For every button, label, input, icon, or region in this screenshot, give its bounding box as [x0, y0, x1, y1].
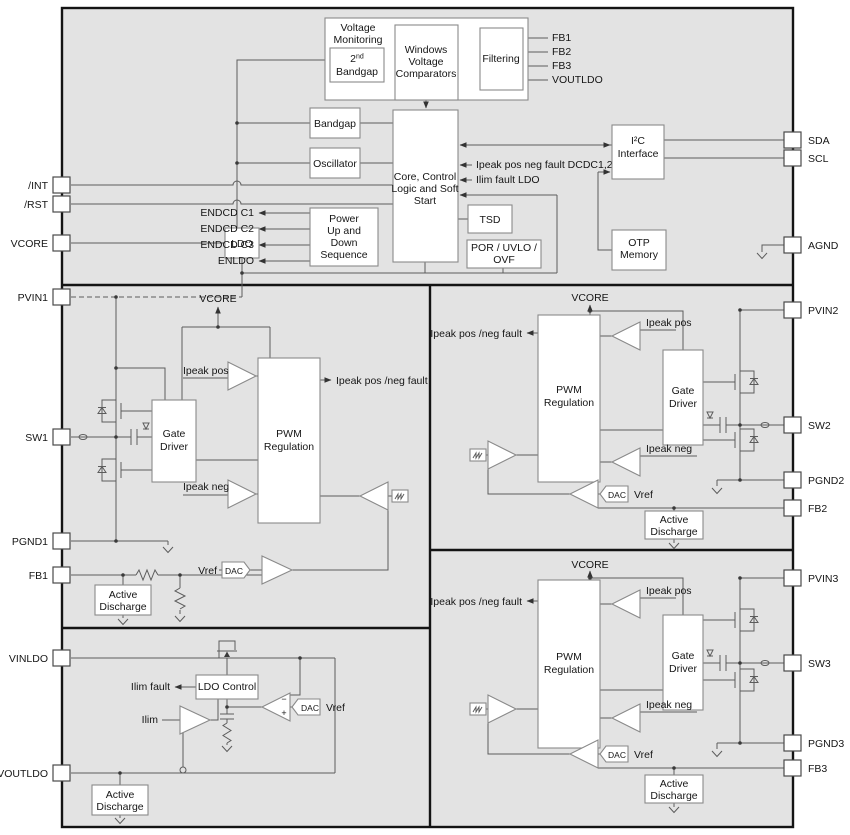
pin-pgnd3-label: PGND3 — [808, 738, 844, 750]
ldo-vref-label: Vref — [326, 702, 345, 714]
dcdc2-dac-label: DAC — [608, 490, 626, 500]
dcdc2-gate-label-2: Driver — [669, 398, 698, 410]
pin-agnd — [784, 237, 801, 253]
seq-label-4: Sequence — [320, 249, 367, 261]
fb3-out-label: FB3 — [552, 60, 571, 72]
dcdc3-vref-label: Vref — [634, 749, 653, 761]
i2c-label-2: Interface — [618, 148, 659, 160]
dcdc2-vref-label: Vref — [634, 489, 653, 501]
pin-voutldo-label: VOUTLDO — [0, 768, 48, 780]
ilim-fault-label: Ilim fault — [131, 681, 170, 693]
dcdc3-gate-label-1: Gate — [672, 650, 695, 662]
por-label-2: OVF — [493, 254, 515, 266]
seq-label-1: Power — [329, 213, 359, 225]
dcdc1-gate-label-2: Driver — [160, 441, 189, 453]
ldo-control-label: LDO Control — [198, 681, 256, 693]
pin-int — [53, 177, 70, 193]
dcdc2-ad-label-1: Active — [660, 514, 689, 526]
dcdc3-pwm-label-1: PWM — [556, 651, 582, 663]
pin-pvin3 — [784, 570, 801, 586]
dcdc3-ad-label-2: Discharge — [650, 790, 697, 802]
dcdc1-dac-label: DAC — [225, 566, 243, 576]
pin-sw3 — [784, 655, 801, 671]
oscillator-label: Oscillator — [313, 158, 357, 170]
dcdc1-gate-label-1: Gate — [163, 428, 186, 440]
filtering-label: Filtering — [482, 53, 520, 65]
dcdc1-pwm-label-2: Regulation — [264, 441, 314, 453]
pin-rst — [53, 196, 70, 212]
pin-vinldo-label: VINLDO — [9, 653, 48, 665]
dcdc3-ipeak-neg-label: Ipeak neg — [646, 699, 692, 711]
dcdc3-ad-label-1: Active — [660, 778, 689, 790]
dcdc1-ad-label-1: Active — [109, 589, 138, 601]
dcdc3-fault-label: Ipeak pos /neg fault — [430, 596, 522, 608]
core-label-1: Core, Control — [394, 171, 456, 183]
dcdc1-ipeak-neg-label: Ipeak neg — [183, 481, 229, 493]
dcdc3-dac-label: DAC — [608, 750, 626, 760]
pin-vinldo — [53, 650, 70, 666]
core-label-3: Start — [414, 195, 436, 207]
dcdc2-ipeak-pos-label: Ipeak pos — [646, 317, 692, 329]
voltage-monitoring-label-1: Voltage — [340, 22, 375, 34]
pin-fb1 — [53, 567, 70, 583]
endcd2-label: ENDCD C2 — [200, 223, 254, 235]
pin-pgnd1-label: PGND1 — [12, 536, 48, 548]
fb1-out-label: FB1 — [552, 32, 571, 44]
ldo-error-amp-plus: + — [281, 708, 286, 718]
dcdc2-ipeak-neg-label: Ipeak neg — [646, 443, 692, 455]
otp-label-1: OTP — [628, 237, 650, 249]
ilim-fault-bus-label: Ilim fault LDO — [476, 174, 540, 186]
dcdc1-pwm-label-1: PWM — [276, 428, 302, 440]
seq-label-2: Up and — [327, 225, 361, 237]
ilim-label: Ilim — [142, 714, 159, 726]
pin-pvin2-label: PVIN2 — [808, 305, 839, 317]
pin-fb3 — [784, 760, 801, 776]
bandgap-label: Bandgap — [314, 118, 356, 130]
pin-sw1-label: SW1 — [25, 432, 48, 444]
pin-fb2 — [784, 500, 801, 516]
voutldo-out-label: VOUTLDO — [552, 74, 603, 86]
pin-agnd-label: AGND — [808, 240, 839, 252]
pin-vcore — [53, 235, 70, 251]
dcdc2-pwm-label-1: PWM — [556, 384, 582, 396]
ldo-ad-label-2: Discharge — [96, 801, 143, 813]
pin-sda-label: SDA — [808, 135, 830, 147]
wvc-label-2: Voltage — [408, 56, 443, 68]
pin-pgnd1 — [53, 533, 70, 549]
dcdc1-vref-label: Vref — [198, 565, 217, 577]
dcdc1-sawtooth-icon — [392, 490, 408, 502]
endcd3-label: ENDCD C3 — [200, 239, 254, 251]
pin-rst-label: /RST — [24, 199, 49, 211]
pin-voutldo — [53, 765, 70, 781]
pin-pvin2 — [784, 302, 801, 318]
otp-label-2: Memory — [620, 249, 659, 261]
voltage-monitoring-label-2: Monitoring — [333, 34, 382, 46]
pin-sw3-label: SW3 — [808, 658, 831, 670]
dcdc2-fault-label: Ipeak pos /neg fault — [430, 328, 522, 340]
dcdc2-ad-label-2: Discharge — [650, 526, 697, 538]
pin-pgnd2 — [784, 472, 801, 488]
endcd1-label: ENDCD C1 — [200, 207, 254, 219]
dcdc3-gate-label-2: Driver — [669, 663, 698, 675]
dcdc1-fault-label: Ipeak pos /neg fault — [336, 375, 428, 387]
dcdc3-sawtooth-icon — [470, 703, 486, 715]
pin-fb3-label: FB3 — [808, 763, 827, 775]
pins-left: /INT /RST VCORE PVIN1 SW1 PGND1 FB1 VINL… — [0, 177, 70, 781]
pin-pvin3-label: PVIN3 — [808, 573, 839, 585]
pin-pgnd2-label: PGND2 — [808, 475, 844, 487]
wvc-label-3: Comparators — [396, 68, 457, 80]
enldo-label: ENLDO — [218, 255, 254, 267]
pin-fb2-label: FB2 — [808, 503, 827, 515]
seq-label-3: Down — [331, 237, 358, 249]
pin-sw2 — [784, 417, 801, 433]
wvc-label-1: Windows — [405, 44, 448, 56]
dcdc2-gate-label-1: Gate — [672, 385, 695, 397]
pin-pgnd3 — [784, 735, 801, 751]
core-label-2: Logic and Soft — [391, 183, 458, 195]
fb2-out-label: FB2 — [552, 46, 571, 58]
dcdc1-ad-label-2: Discharge — [99, 601, 146, 613]
ldo-dac-label: DAC — [301, 703, 319, 713]
ldo-ad-label-1: Active — [106, 789, 135, 801]
pin-sda — [784, 132, 801, 148]
pin-scl — [784, 150, 801, 166]
pmic-block-diagram: Voltage Monitoring 2nd Bandgap Windows V… — [0, 0, 850, 835]
pin-int-label: /INT — [28, 180, 48, 192]
dcdc2-sawtooth-icon — [470, 449, 486, 461]
pin-pvin1 — [53, 289, 70, 305]
diagram-canvas: Voltage Monitoring 2nd Bandgap Windows V… — [0, 0, 850, 835]
por-label-1: POR / UVLO / — [471, 242, 537, 254]
dcdc1-vcore-label: VCORE — [199, 293, 236, 305]
dcdc3-pwm-label-2: Regulation — [544, 664, 594, 676]
dcdc2-vcore-label: VCORE — [571, 292, 608, 304]
pin-fb1-label: FB1 — [29, 570, 48, 582]
pin-vcore-label: VCORE — [11, 238, 48, 250]
tsd-label: TSD — [480, 214, 501, 226]
i2c-label-1: I²C — [631, 135, 645, 147]
ldo-error-amp-minus: − — [281, 694, 286, 704]
second-bandgap-label-2: Bandgap — [336, 66, 378, 78]
pin-pvin1-label: PVIN1 — [18, 292, 49, 304]
pin-sw2-label: SW2 — [808, 420, 831, 432]
dcdc3-ipeak-pos-label: Ipeak pos — [646, 585, 692, 597]
dcdc2-pwm-label-2: Regulation — [544, 397, 594, 409]
pin-sw1 — [53, 429, 70, 445]
dcdc1-ipeak-pos-label: Ipeak pos — [183, 365, 229, 377]
pin-scl-label: SCL — [808, 153, 829, 165]
dcdc3-vcore-label: VCORE — [571, 559, 608, 571]
ipeak-fault-bus-label: Ipeak pos neg fault DCDC1,2,3 — [476, 159, 621, 171]
